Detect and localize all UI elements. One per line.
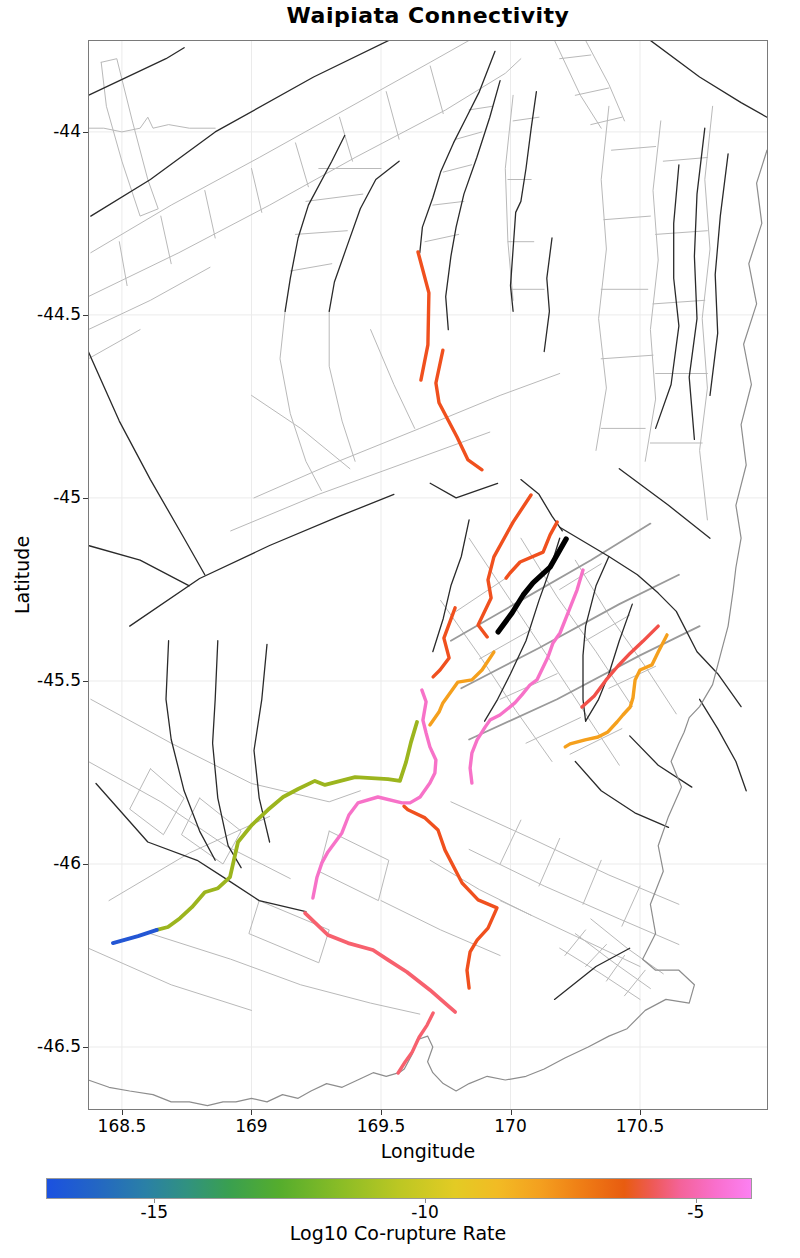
fault-section-gray: [612, 147, 656, 151]
y-tick-mark: [83, 498, 88, 499]
fault-section-gray: [231, 432, 490, 531]
x-tick-label: 169: [235, 1116, 267, 1136]
fault-trace-black: [619, 469, 710, 539]
map-canvas: [88, 40, 768, 1110]
fault-trace-black: [446, 81, 500, 330]
fault-trace-black: [213, 641, 242, 868]
fault-trace-black: [630, 736, 692, 787]
fault-section-gray: [381, 901, 500, 956]
fault-section-gray: [560, 55, 591, 59]
fault-section-gray: [443, 165, 471, 172]
fault-section-gray: [130, 769, 184, 835]
y-tick-label: -44.5: [0, 304, 81, 324]
fault-section-gray: [591, 919, 664, 974]
colorbar-tick-label: -5: [687, 1202, 704, 1222]
fault-section-gray: [91, 699, 361, 802]
fault-section-gray: [88, 330, 140, 359]
fault-trace-black: [329, 161, 399, 311]
colorbar-tick-label: -15: [140, 1202, 168, 1222]
fault-section-gray: [290, 264, 332, 271]
x-tick-label: 169.5: [357, 1116, 406, 1136]
fault-section-gray: [575, 934, 650, 989]
fault-section-gray: [656, 231, 708, 235]
x-tick-label: 168.5: [98, 1116, 147, 1136]
chart-title: Waipiata Connectivity: [88, 3, 768, 28]
y-tick-label: -44: [0, 121, 81, 141]
x-tick-mark: [511, 1110, 512, 1115]
fault-trace-black: [511, 92, 537, 312]
colorbar-label: Log10 Co-rupture Rate: [46, 1222, 750, 1244]
fault-section-gray: [653, 300, 705, 304]
fault-trace-black: [544, 238, 552, 352]
fault-section-gray: [254, 374, 560, 498]
fault-section-gray: [280, 311, 321, 490]
fault-section-gray: [596, 106, 609, 450]
fault-section-gray: [433, 201, 464, 205]
fault-trace-black: [88, 352, 205, 575]
fault-section-gray: [601, 355, 653, 359]
fault-section-gray: [456, 579, 505, 612]
fault-section-gray: [430, 66, 443, 114]
fault-section-gray: [526, 718, 580, 744]
y-tick-mark: [83, 132, 88, 133]
fault-section-gray: [700, 106, 713, 520]
fault-trace-black: [433, 520, 469, 652]
y-tick-mark: [83, 1047, 88, 1048]
fault-trace-black: [130, 494, 394, 626]
y-tick-mark: [83, 864, 88, 865]
fault-section-gray: [575, 88, 609, 95]
fault-section-gray: [205, 191, 215, 239]
fault-trace-black: [166, 641, 215, 861]
highlighted-rupture: [498, 539, 566, 632]
fault-section-gray: [430, 860, 531, 915]
x-axis-label: Longitude: [88, 1140, 768, 1162]
x-tick-label: 170.5: [616, 1116, 665, 1136]
fault-trace-black: [575, 762, 668, 828]
figure: Waipiata Connectivity Latitude Longitude…: [0, 0, 800, 1258]
y-axis-label: Latitude: [11, 536, 33, 614]
fault-section-gray: [479, 630, 531, 659]
fault-section-gray: [340, 117, 353, 161]
fault-section-gray: [306, 194, 363, 201]
fault-section-gray: [555, 40, 602, 128]
y-tick-label: -46: [0, 853, 81, 873]
highlighted-rupture: [113, 930, 157, 943]
x-tick-mark: [640, 1110, 641, 1115]
highlighted-rupture: [398, 1013, 433, 1073]
colorbar-tick-label: -10: [411, 1202, 439, 1222]
y-tick-mark: [83, 681, 88, 682]
highlighted-rupture: [305, 913, 455, 1012]
fault-section-gray: [371, 330, 415, 429]
y-tick-mark: [83, 315, 88, 316]
fault-section-gray: [119, 242, 127, 286]
highlighted-rupture: [478, 495, 531, 637]
fault-section-gray: [586, 40, 625, 121]
fault-trace-black: [88, 546, 189, 586]
fault-section-gray: [622, 886, 640, 926]
x-tick-mark: [122, 1110, 123, 1115]
fault-section-gray: [469, 106, 492, 110]
x-tick-mark: [381, 1110, 382, 1115]
fault-section-gray: [252, 169, 262, 213]
plot-border: [89, 41, 768, 1110]
fault-trace-black: [285, 136, 345, 312]
fault-section-gray: [645, 121, 661, 461]
fault-section-gray: [500, 901, 640, 967]
fault-section-gray: [604, 216, 651, 220]
fault-section-gray-bold: [461, 575, 679, 689]
y-tick-label: -45: [0, 487, 81, 507]
fault-trace-black: [700, 699, 747, 791]
fault-trace-black: [689, 128, 705, 439]
fault-trace-black: [656, 165, 679, 429]
fault-section-gray: [88, 267, 210, 329]
fault-section-gray: [150, 934, 419, 1015]
fault-section-gray: [161, 216, 171, 264]
fault-trace-black: [430, 483, 497, 498]
fault-section-gray: [329, 311, 355, 461]
fault-trace-black: [710, 154, 728, 396]
fault-trace-black: [91, 40, 389, 216]
y-tick-label: -46.5: [0, 1036, 81, 1056]
fault-section-gray: [319, 831, 389, 901]
highlighted-rupture: [404, 806, 497, 988]
x-tick-label: 170: [494, 1116, 526, 1136]
fault-section-gray: [252, 395, 350, 468]
colorbar: [46, 1178, 752, 1199]
fault-section-gray: [296, 143, 309, 187]
highlighted-rupture: [470, 570, 583, 783]
fault-section-gray: [249, 901, 329, 963]
fault-trace-black: [650, 40, 767, 117]
fault-section-gray: [88, 117, 215, 132]
fault-section-gray: [539, 838, 560, 886]
fault-section-gray: [456, 132, 482, 139]
fault-section-gray: [109, 816, 270, 900]
highlighted-rupture: [418, 252, 429, 380]
x-tick-mark: [251, 1110, 252, 1115]
y-tick-label: -45.5: [0, 670, 81, 690]
fault-section-gray: [296, 231, 348, 235]
fault-section-gray: [91, 40, 469, 252]
highlighted-rupture: [436, 350, 482, 470]
fault-section-gray: [513, 117, 539, 121]
